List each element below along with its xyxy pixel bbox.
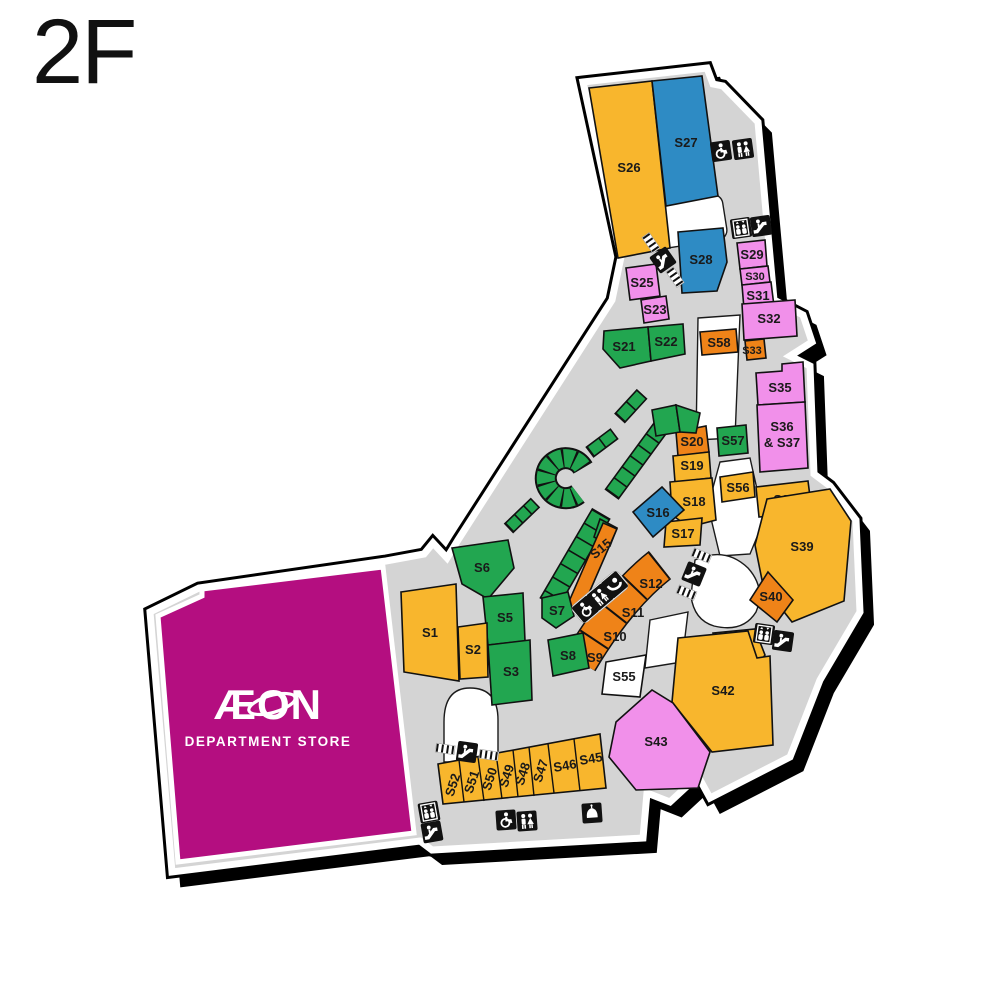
floor-plan-svg: ÆON DEPARTMENT STORE S26 S27 S28 S25 [0, 0, 1000, 1000]
elevator-icon [730, 217, 753, 240]
svg-text:S10: S10 [603, 629, 626, 644]
svg-text:S19: S19 [680, 458, 703, 473]
elevator-icon [753, 623, 776, 646]
accessible-restroom-icon [710, 140, 733, 163]
svg-text:S2: S2 [465, 642, 481, 657]
restroom-icon [732, 138, 755, 161]
mall-floor-map: 2F [0, 0, 1000, 1000]
store-s5[interactable]: S5 [483, 593, 525, 645]
aeon-logo-subtitle: DEPARTMENT STORE [185, 734, 352, 749]
escalator-icon [456, 741, 479, 764]
svg-text:S39: S39 [790, 539, 813, 554]
svg-text:S29: S29 [740, 247, 763, 262]
svg-text:S23: S23 [643, 302, 666, 317]
svg-text:S43: S43 [644, 734, 667, 749]
svg-text:S33: S33 [742, 345, 762, 357]
aeon-logo-text: ÆON [214, 681, 322, 728]
store-s56[interactable]: S56 [720, 472, 755, 502]
store-s19[interactable]: S19 [673, 452, 711, 482]
svg-text:S25: S25 [630, 275, 653, 290]
svg-text:S22: S22 [654, 334, 677, 349]
prayer-room-icon [581, 802, 602, 823]
svg-text:S27: S27 [674, 135, 697, 150]
store-s32[interactable]: S32 [742, 300, 797, 340]
svg-text:S17: S17 [671, 526, 694, 541]
svg-text:& S37: & S37 [764, 435, 800, 450]
svg-text:S58: S58 [707, 335, 730, 350]
store-s3[interactable]: S3 [488, 640, 532, 705]
elevator-icon [417, 800, 440, 823]
svg-text:S35: S35 [768, 380, 791, 395]
svg-text:S28: S28 [689, 252, 712, 267]
floor-label: 2F [32, 6, 135, 98]
svg-text:S9: S9 [587, 650, 603, 665]
svg-text:S3: S3 [503, 664, 519, 679]
store-s25[interactable]: S25 [626, 264, 660, 300]
svg-text:S26: S26 [617, 160, 640, 175]
svg-text:S7: S7 [549, 603, 565, 618]
kiosk-block [652, 405, 680, 436]
store-s36-s37[interactable]: S36 & S37 [757, 402, 808, 472]
store-aeon-department-store[interactable]: ÆON DEPARTMENT STORE [158, 567, 414, 862]
restroom-icon [516, 810, 537, 831]
svg-text:S5: S5 [497, 610, 513, 625]
svg-text:S8: S8 [560, 648, 576, 663]
svg-text:S16: S16 [646, 505, 669, 520]
svg-text:S57: S57 [721, 433, 744, 448]
svg-text:S32: S32 [757, 311, 780, 326]
store-s29[interactable]: S29 [737, 240, 767, 269]
store-s55[interactable]: S55 [602, 655, 646, 697]
svg-text:S36: S36 [770, 419, 793, 434]
escalator-icon [420, 820, 443, 843]
escalator-icon [772, 630, 795, 653]
svg-text:S31: S31 [746, 288, 769, 303]
store-s28[interactable]: S28 [678, 228, 727, 293]
svg-text:S20: S20 [680, 434, 703, 449]
svg-text:S1: S1 [422, 625, 438, 640]
store-s23[interactable]: S23 [641, 296, 669, 323]
svg-text:S40: S40 [759, 589, 782, 604]
svg-text:S11: S11 [622, 605, 644, 620]
escalator-icon [750, 215, 773, 238]
store-s8[interactable]: S8 [548, 633, 589, 676]
svg-text:S42: S42 [711, 683, 734, 698]
store-s33[interactable]: S33 [742, 339, 766, 360]
svg-text:S30: S30 [745, 271, 765, 283]
svg-text:S56: S56 [726, 480, 749, 495]
svg-text:S18: S18 [682, 494, 705, 509]
store-s1[interactable]: S1 [401, 584, 459, 681]
store-s22[interactable]: S22 [648, 324, 685, 361]
store-s58[interactable]: S58 [700, 329, 738, 355]
store-s2[interactable]: S2 [458, 623, 488, 679]
svg-text:S6: S6 [474, 560, 490, 575]
svg-text:S55: S55 [612, 669, 635, 684]
accessible-restroom-icon [495, 809, 516, 830]
svg-text:S12: S12 [639, 576, 662, 591]
store-s57[interactable]: S57 [717, 425, 748, 456]
svg-text:S21: S21 [612, 339, 635, 354]
